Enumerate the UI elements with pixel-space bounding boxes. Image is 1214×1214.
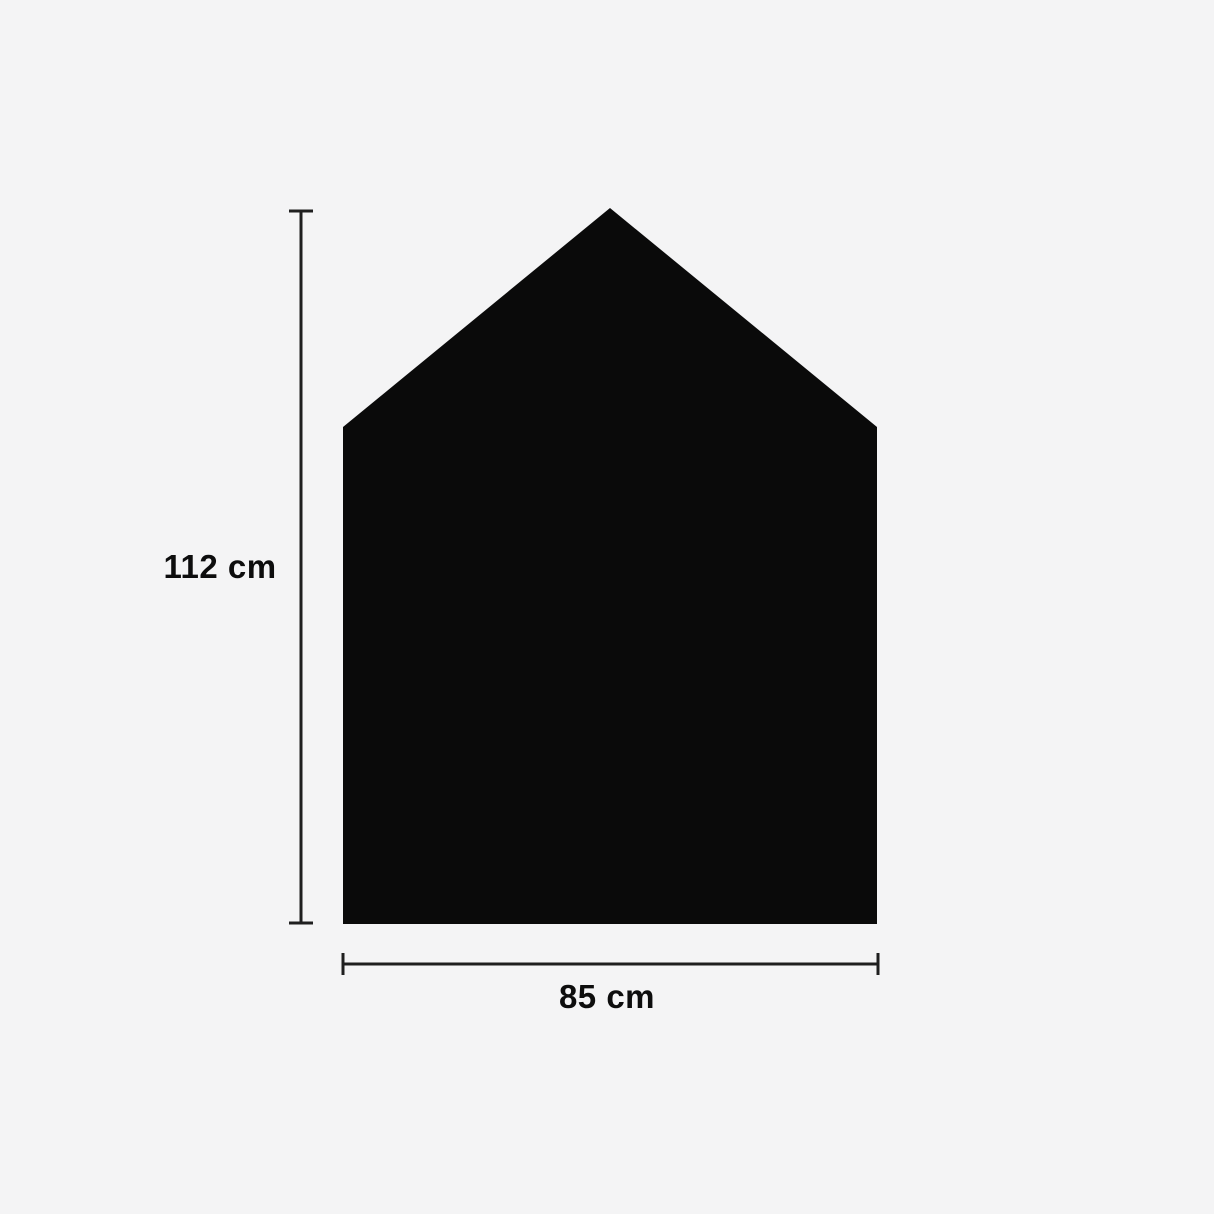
diagram-canvas: 112 cm 85 cm: [0, 0, 1214, 1214]
width-dimension-label: 85 cm: [507, 977, 707, 1017]
height-dimension-label: 112 cm: [120, 547, 320, 587]
dimension-diagram: [0, 0, 1214, 1214]
